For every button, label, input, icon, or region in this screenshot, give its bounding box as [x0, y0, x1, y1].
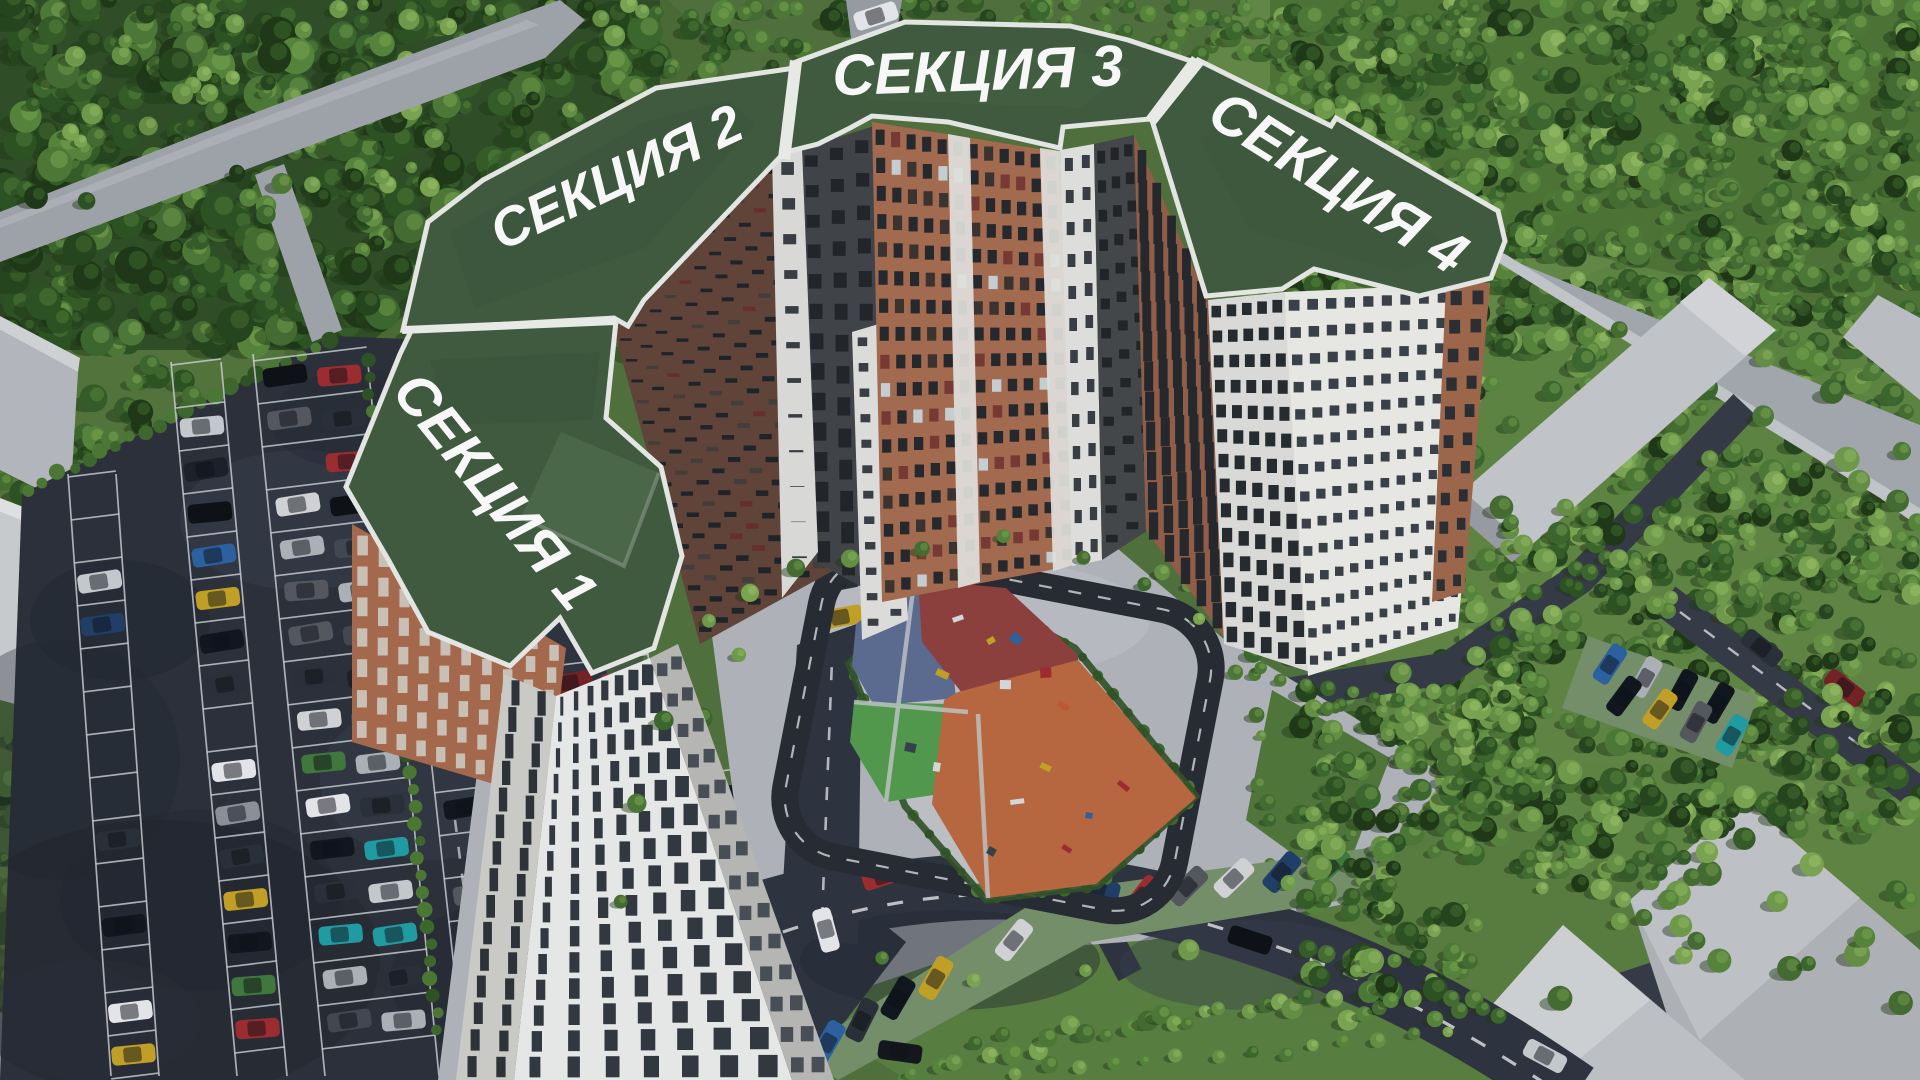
- svg-text:СЕКЦИЯ 3: СЕКЦИЯ 3: [831, 33, 1124, 108]
